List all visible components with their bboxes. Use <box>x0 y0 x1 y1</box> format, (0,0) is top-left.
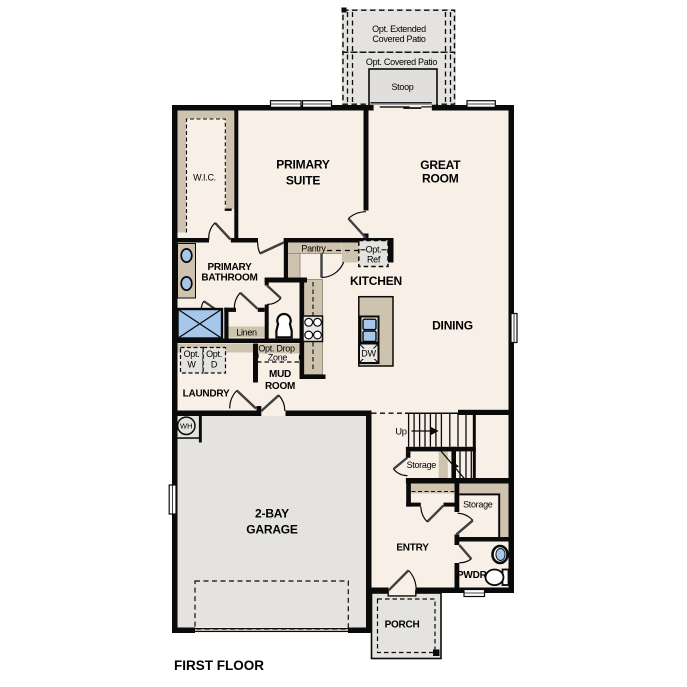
svg-text:BATHROOM: BATHROOM <box>201 273 257 284</box>
svg-text:MUD: MUD <box>269 369 291 380</box>
svg-text:Opt.: Opt. <box>206 349 222 359</box>
svg-text:W: W <box>187 360 196 370</box>
svg-text:2-BAY: 2-BAY <box>255 507 289 521</box>
svg-text:FIRST FLOOR: FIRST FLOOR <box>174 658 264 673</box>
svg-text:Zone: Zone <box>268 353 288 363</box>
svg-text:Pantry: Pantry <box>301 244 326 254</box>
svg-text:Linen: Linen <box>236 328 257 338</box>
svg-text:ROOM: ROOM <box>422 172 459 186</box>
svg-text:ENTRY: ENTRY <box>396 543 429 554</box>
svg-text:Opt. Covered Patio: Opt. Covered Patio <box>366 57 437 67</box>
svg-text:Covered Patio: Covered Patio <box>372 34 425 44</box>
svg-text:PRIMARY: PRIMARY <box>276 158 330 172</box>
svg-text:Opt.: Opt. <box>184 349 200 359</box>
svg-text:GARAGE: GARAGE <box>246 523 298 537</box>
svg-text:WH: WH <box>180 422 193 431</box>
svg-text:KITCHEN: KITCHEN <box>350 274 402 288</box>
svg-text:W.I.C.: W.I.C. <box>193 173 216 183</box>
svg-text:GREAT: GREAT <box>420 158 461 172</box>
svg-text:LAUNDRY: LAUNDRY <box>183 389 230 400</box>
svg-text:PRIMARY: PRIMARY <box>208 262 253 273</box>
svg-text:Ref: Ref <box>367 255 381 265</box>
svg-text:Opt.: Opt. <box>366 245 382 255</box>
svg-text:Opt. Extended: Opt. Extended <box>372 24 426 34</box>
svg-text:PORCH: PORCH <box>385 620 420 631</box>
svg-text:PWDR: PWDR <box>457 570 488 581</box>
svg-text:DINING: DINING <box>432 319 473 333</box>
svg-text:DW: DW <box>361 349 376 359</box>
svg-text:ROOM: ROOM <box>265 381 295 392</box>
svg-text:Storage: Storage <box>407 460 437 470</box>
svg-text:Storage: Storage <box>463 500 493 510</box>
svg-text:D: D <box>211 360 218 370</box>
svg-text:SUITE: SUITE <box>286 174 321 188</box>
svg-text:Up: Up <box>395 427 407 438</box>
svg-text:Stoop: Stoop <box>391 82 413 92</box>
